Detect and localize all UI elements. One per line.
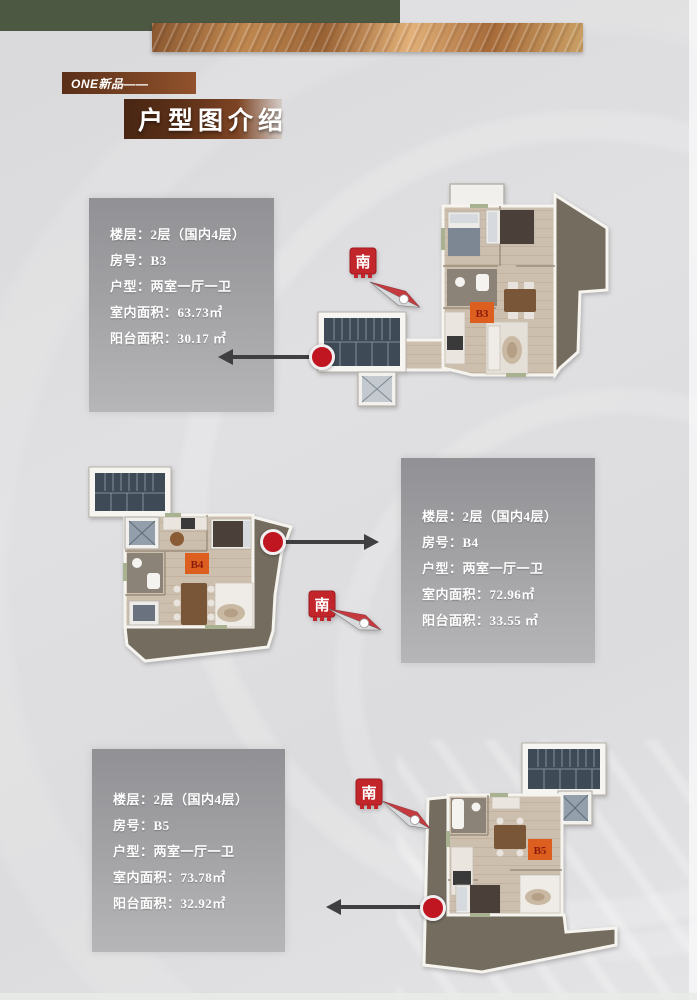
- info-label: 楼层：: [110, 227, 151, 242]
- info-box-b4: 楼层：2层（国内4层） 房号：B4 户型：两室一厅一卫 室内面积：72.96㎡ …: [401, 458, 595, 663]
- info-value: 两室一厅一卫: [154, 844, 235, 859]
- pointer-arrowhead-b5: [326, 899, 341, 915]
- pointer-line-b4: [281, 540, 365, 544]
- compass-label: 南: [361, 784, 376, 802]
- info-row: 房号：B3: [110, 248, 266, 274]
- info-label: 房号：: [422, 535, 463, 550]
- page-edge-highlight: [689, 0, 697, 1000]
- info-row: 房号：B4: [422, 530, 587, 556]
- info-row: 阳台面积：33.55 ㎡: [422, 608, 587, 634]
- bed: [456, 885, 500, 913]
- info-row: 楼层：2层（国内4层）: [422, 504, 587, 530]
- compass-icon: 南: [350, 248, 424, 315]
- stairwell-b5: [522, 743, 606, 795]
- info-value: 33.55 ㎡: [490, 613, 539, 628]
- info-value: 两室一厅一卫: [463, 561, 544, 576]
- info-value: 73.78㎡: [181, 870, 226, 885]
- unit-tag-b5: B5: [528, 839, 552, 860]
- bathroom-b3: [447, 269, 497, 306]
- header-copper-bar: [152, 23, 583, 52]
- info-label: 户型：: [110, 279, 151, 294]
- unit-tag-b3: B3: [470, 302, 494, 323]
- page-title-bar: 户型图介绍: [124, 99, 282, 139]
- series-badge: ONE新品——: [62, 72, 196, 94]
- terrace-b3: [555, 195, 607, 375]
- compass-label: 南: [355, 253, 370, 271]
- unit-tag-b4: B4: [185, 553, 209, 574]
- sofa: [520, 875, 560, 913]
- info-value: 两室一厅一卫: [151, 279, 232, 294]
- compass-needle: [366, 275, 423, 315]
- info-label: 房号：: [110, 253, 151, 268]
- info-value: 2层（国内4层）: [154, 792, 249, 807]
- unit-tag-label: B4: [191, 559, 204, 571]
- info-value: B4: [463, 535, 479, 550]
- floor-plan-b5: B5 南: [320, 735, 620, 975]
- series-badge-label: ONE新品——: [62, 75, 149, 92]
- bed: [448, 212, 480, 256]
- stairwell-b4: [89, 467, 171, 517]
- pointer-arrowhead-b4: [364, 534, 379, 550]
- info-row: 楼层：2层（国内4层）: [113, 787, 277, 813]
- bed: [129, 601, 159, 625]
- info-label: 户型：: [422, 561, 463, 576]
- info-value: B5: [154, 818, 170, 833]
- bed: [486, 210, 534, 244]
- bathroom-b4: [127, 553, 163, 593]
- info-value: B3: [151, 253, 167, 268]
- sofa: [486, 322, 528, 374]
- info-label: 室内面积：: [110, 305, 178, 320]
- info-label: 楼层：: [422, 509, 463, 524]
- location-dot-b4: [260, 529, 286, 555]
- info-value: 30.17 ㎡: [178, 331, 227, 346]
- unit-tag-label: B5: [534, 845, 547, 857]
- page-title: 户型图介绍: [124, 101, 288, 137]
- corridor-b3: [400, 340, 448, 370]
- info-label: 阳台面积：: [113, 896, 181, 911]
- info-row: 户型：两室一厅一卫: [113, 839, 277, 865]
- dining-table: [174, 583, 215, 625]
- info-label: 室内面积：: [422, 587, 490, 602]
- info-value: 2层（国内4层）: [151, 227, 246, 242]
- bathroom-b5: [451, 798, 486, 833]
- kitchen-b3: [445, 312, 465, 364]
- cabinet: [492, 797, 520, 809]
- poster-page: ONE新品—— 户型图介绍 楼层：2层（国内4层） 房号：B3 户型：两室一厅一…: [0, 0, 697, 1000]
- pointer-line-b3: [233, 355, 315, 359]
- info-label: 楼层：: [113, 792, 154, 807]
- info-row: 户型：两室一厅一卫: [110, 274, 266, 300]
- info-row: 阳台面积：30.17 ㎡: [110, 326, 266, 352]
- pointer-line-b5: [341, 905, 425, 909]
- pointer-arrowhead-b3: [218, 349, 233, 365]
- sofa: [215, 583, 253, 627]
- info-row: 室内面积：73.78㎡: [113, 865, 277, 891]
- info-row: 房号：B5: [113, 813, 277, 839]
- info-row: 室内面积：63.73㎡: [110, 300, 266, 326]
- info-value: 63.73㎡: [178, 305, 223, 320]
- info-row: 室内面积：72.96㎡: [422, 582, 587, 608]
- info-row: 楼层：2层（国内4层）: [110, 222, 266, 248]
- elevator-b3: [358, 372, 396, 406]
- elevator-b4: [125, 517, 159, 549]
- location-dot-b3: [309, 344, 335, 370]
- info-box-b3: 楼层：2层（国内4层） 房号：B3 户型：两室一厅一卫 室内面积：63.73㎡ …: [89, 198, 274, 412]
- info-box-b5: 楼层：2层（国内4层） 房号：B5 户型：两室一厅一卫 室内面积：73.78㎡ …: [92, 749, 285, 952]
- bed: [211, 519, 251, 549]
- info-value: 72.96㎡: [490, 587, 535, 602]
- page-edge-highlight: [0, 993, 697, 1000]
- info-label: 户型：: [113, 844, 154, 859]
- compass-icon: 南: [356, 779, 434, 836]
- floor-plan-b4: B4 南: [85, 455, 385, 695]
- location-dot-b5: [420, 895, 446, 921]
- info-value: 2层（国内4层）: [463, 509, 558, 524]
- floor-plan-b3: B3 南: [310, 170, 610, 410]
- compass-icon: 南: [309, 591, 384, 637]
- compass-label: 南: [314, 596, 329, 614]
- info-label: 阳台面积：: [110, 331, 178, 346]
- info-row: 阳台面积：32.92㎡: [113, 891, 277, 917]
- info-label: 室内面积：: [113, 870, 181, 885]
- info-value: 32.92㎡: [181, 896, 226, 911]
- info-row: 户型：两室一厅一卫: [422, 556, 587, 582]
- info-label: 房号：: [113, 818, 154, 833]
- info-label: 阳台面积：: [422, 613, 490, 628]
- unit-tag-label: B3: [476, 308, 489, 320]
